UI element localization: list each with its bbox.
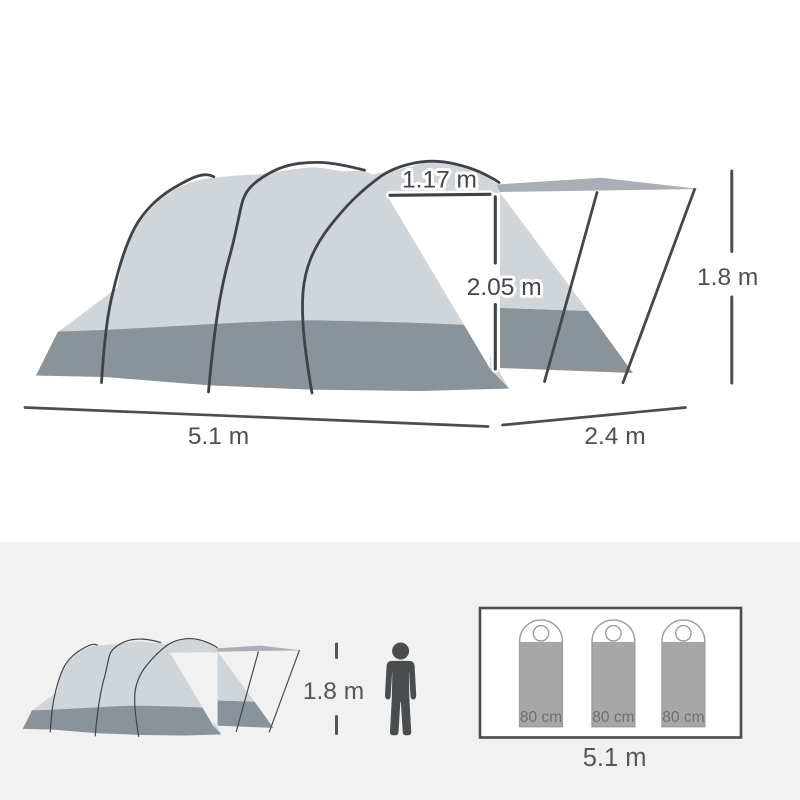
svg-text:80 cm: 80 cm <box>520 709 562 726</box>
svg-text:80 cm: 80 cm <box>662 709 704 726</box>
svg-text:80 cm: 80 cm <box>592 709 634 726</box>
svg-text:5.1 m: 5.1 m <box>583 744 647 772</box>
svg-text:2.05 m: 2.05 m <box>467 274 542 301</box>
svg-text:2.4 m: 2.4 m <box>584 423 645 450</box>
svg-text:1.17 m: 1.17 m <box>402 167 477 194</box>
svg-text:1.8 m: 1.8 m <box>303 678 364 705</box>
svg-text:1.8 m: 1.8 m <box>697 264 758 291</box>
svg-text:5.1 m: 5.1 m <box>188 423 249 450</box>
